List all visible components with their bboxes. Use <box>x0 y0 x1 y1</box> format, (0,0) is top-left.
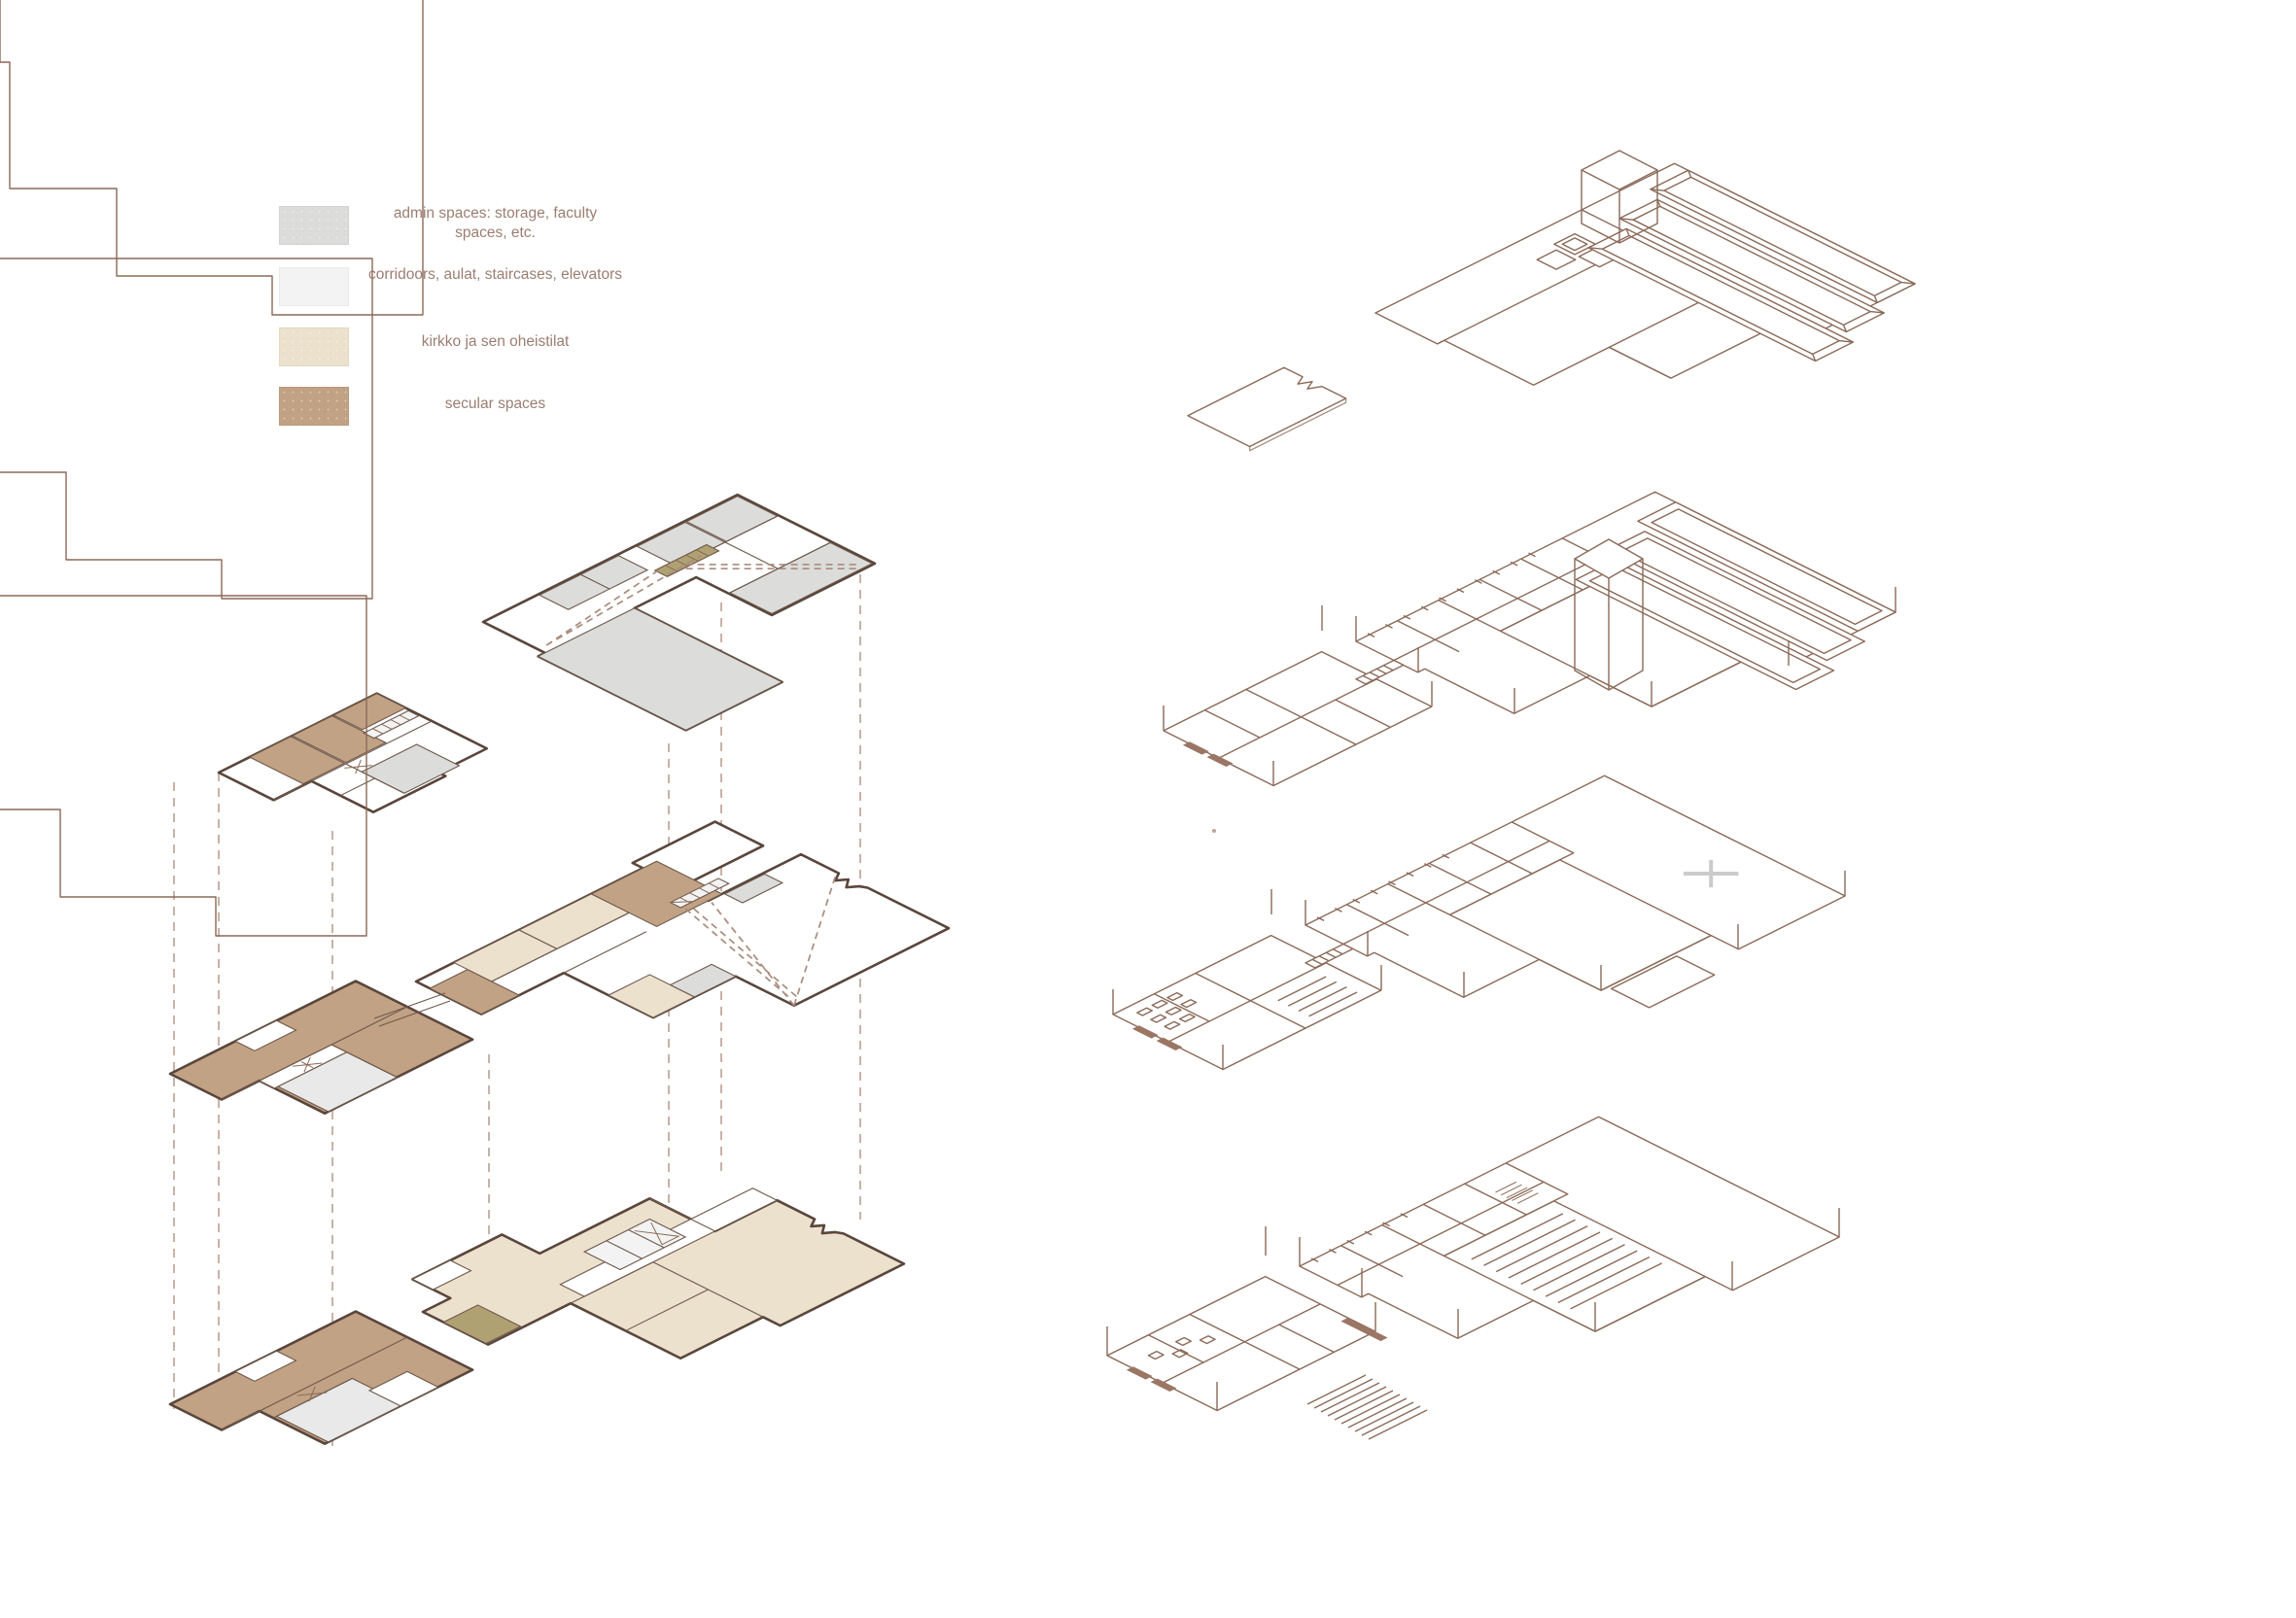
entry-stair <box>1307 1375 1427 1439</box>
plan-bottomleft-level <box>170 1312 472 1463</box>
plan-admin-level <box>476 495 947 730</box>
plan-middle-level <box>405 816 949 1087</box>
plan-small-upper <box>219 694 494 831</box>
axonometric-drawing <box>0 0 2296 1618</box>
architectural-diagram-sheet: { "page": { "background": "#ffffff" }, "… <box>0 0 2296 1618</box>
stray-dot <box>1212 829 1216 833</box>
wire-level-roof <box>1175 151 1943 547</box>
diagram-stage: admin spaces: storage, faculty spaces, e… <box>0 0 2296 1618</box>
exploded-axon-colored <box>170 495 949 1463</box>
wire-level-main <box>0 249 1859 1148</box>
plan-midleft-level <box>170 981 472 1133</box>
